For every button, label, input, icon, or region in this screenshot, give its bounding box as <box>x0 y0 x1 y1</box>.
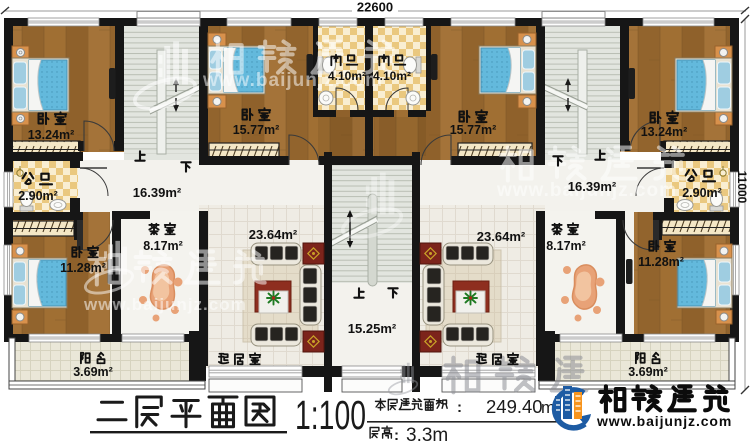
svg-text:15.77m²: 15.77m² <box>233 123 280 137</box>
svg-text:www.baijunjz.com: www.baijunjz.com <box>596 413 732 429</box>
svg-text:16.39m²: 16.39m² <box>133 185 182 200</box>
svg-text:2.90m²: 2.90m² <box>18 189 58 203</box>
svg-text:3.69m²: 3.69m² <box>628 365 668 379</box>
svg-text:11.28m²: 11.28m² <box>638 255 684 269</box>
svg-text:23.64m²: 23.64m² <box>249 227 298 242</box>
svg-text:15.77m²: 15.77m² <box>450 123 497 137</box>
svg-text:4.10m²: 4.10m² <box>373 69 411 83</box>
svg-text::: : <box>394 427 399 444</box>
svg-text:16.39m²: 16.39m² <box>568 179 617 194</box>
svg-text:8.17m²: 8.17m² <box>143 239 183 253</box>
svg-text:23.64m²: 23.64m² <box>477 229 526 244</box>
svg-text::: : <box>457 399 462 416</box>
svg-text:13.24m²: 13.24m² <box>28 128 75 142</box>
svg-text:11.28m²: 11.28m² <box>60 261 106 275</box>
svg-text:8.17m²: 8.17m² <box>546 239 586 253</box>
svg-text:3.3m: 3.3m <box>406 425 448 446</box>
svg-text:www.baijunjz.com: www.baijunjz.com <box>83 295 247 314</box>
svg-text:22600: 22600 <box>357 0 393 15</box>
svg-text:15.25m²: 15.25m² <box>348 321 397 336</box>
svg-text:249.40: 249.40 <box>486 396 543 417</box>
svg-text:11000: 11000 <box>735 171 749 204</box>
svg-text:1:100: 1:100 <box>295 392 366 438</box>
svg-text:13.24m²: 13.24m² <box>641 125 688 139</box>
svg-text:4.10m²: 4.10m² <box>328 69 366 83</box>
svg-text:3.69m²: 3.69m² <box>73 365 113 379</box>
svg-text:2.90m²: 2.90m² <box>682 186 722 200</box>
